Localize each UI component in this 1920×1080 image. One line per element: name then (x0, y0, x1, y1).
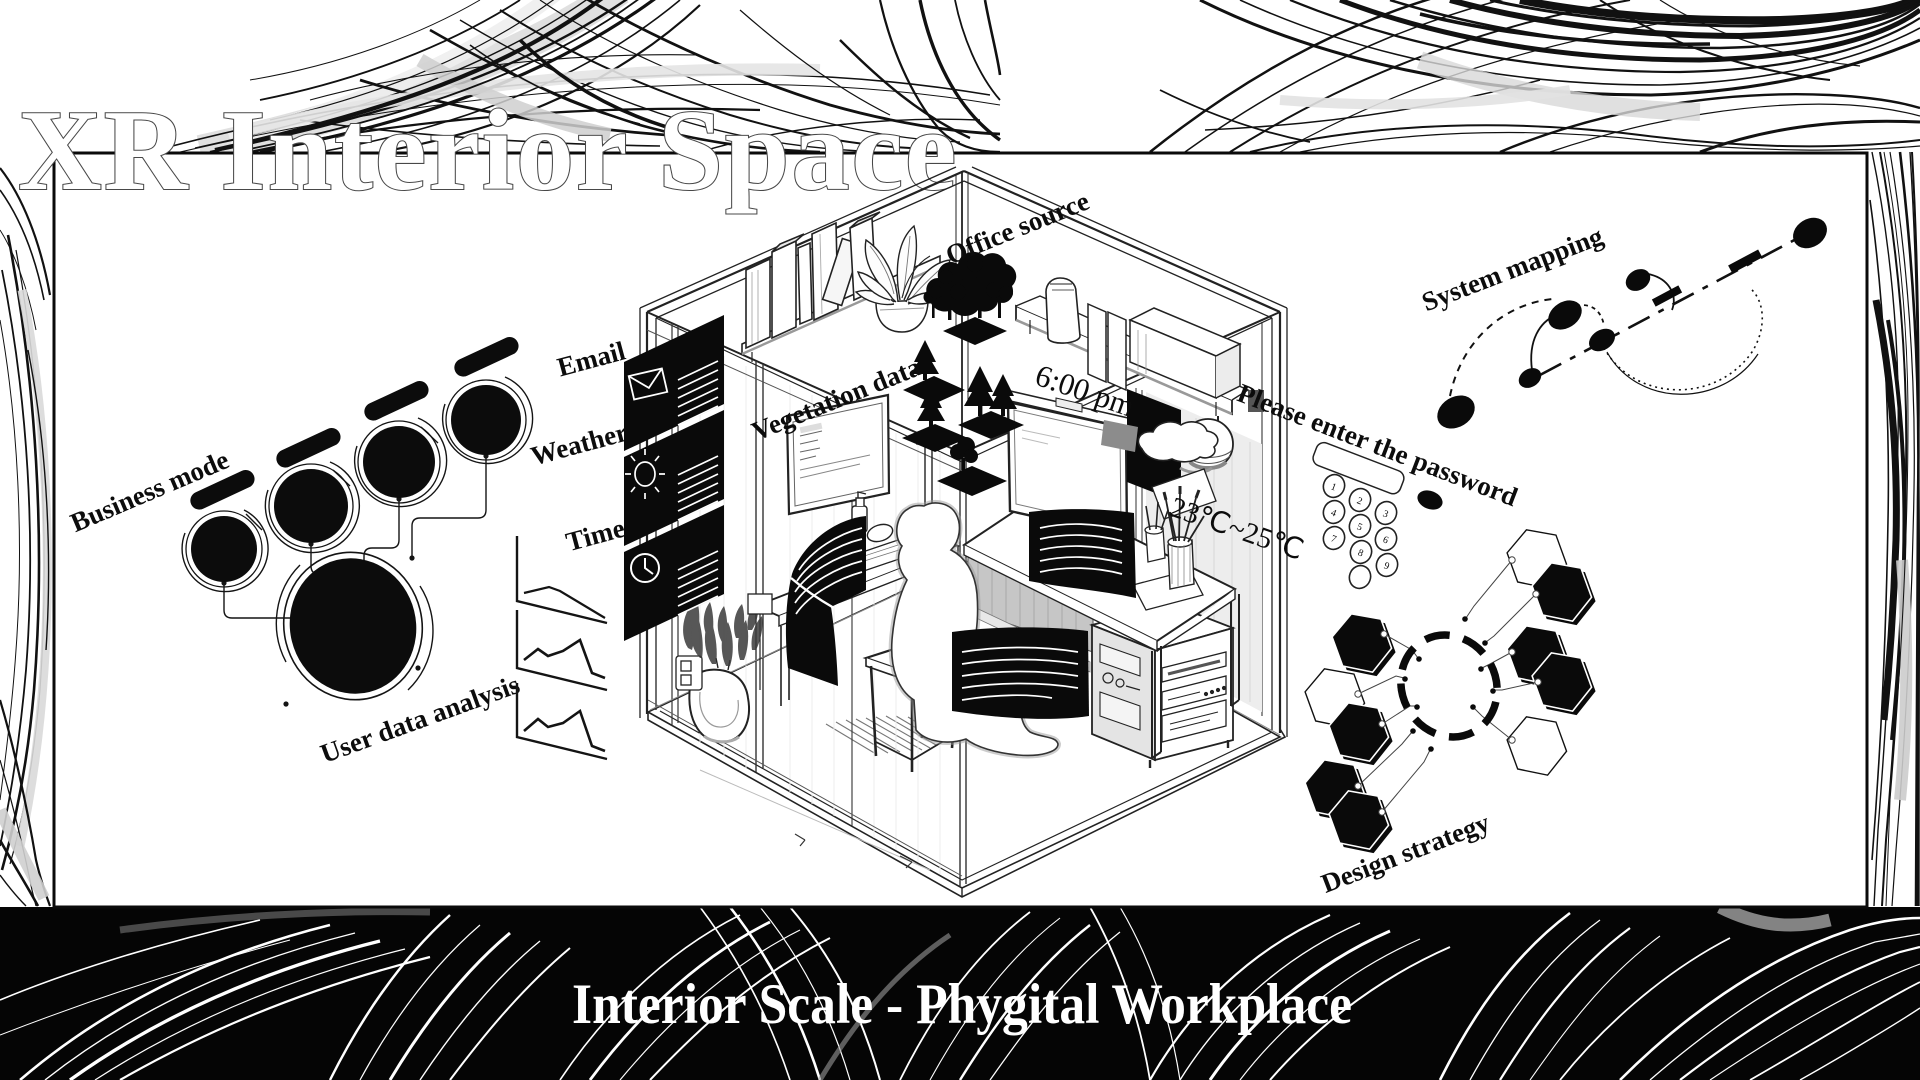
svg-text:XR Interior Space: XR Interior Space (18, 87, 958, 215)
svg-text:Interior Scale - Phygital Work: Interior Scale - Phygital Workplace (572, 973, 1352, 1036)
